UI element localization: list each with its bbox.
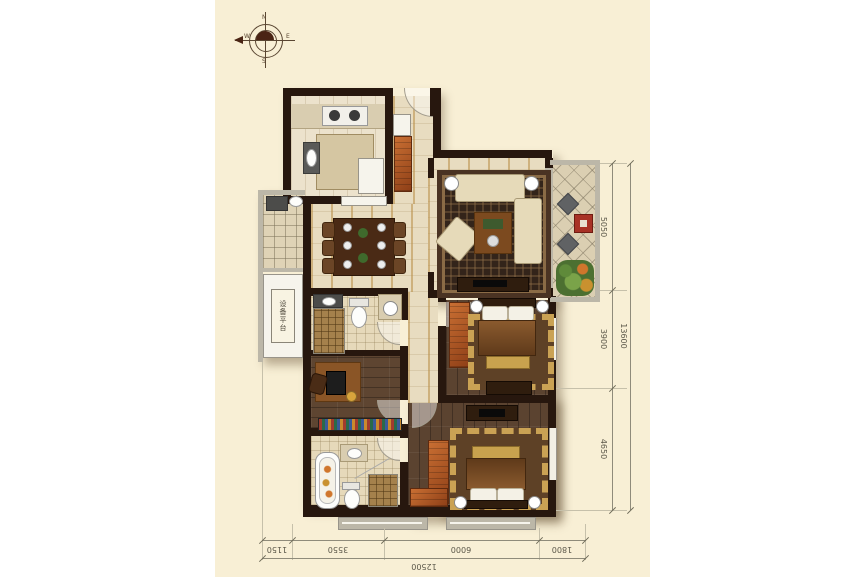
chaise-lounge bbox=[514, 198, 542, 264]
bed-bench bbox=[486, 356, 530, 369]
dining-chair bbox=[322, 240, 335, 256]
bay-window-pane bbox=[342, 522, 422, 524]
plate bbox=[377, 260, 386, 269]
stove-burner-icon bbox=[329, 110, 340, 121]
coffee-table-tray bbox=[483, 219, 503, 229]
master-bath-sink bbox=[347, 448, 362, 459]
utility-counter bbox=[266, 196, 288, 211]
pillow bbox=[508, 306, 534, 321]
kitchen-sliding-door bbox=[341, 196, 387, 206]
plate bbox=[377, 241, 386, 250]
kitchen-sink-unit bbox=[303, 142, 320, 174]
side-table bbox=[524, 176, 539, 191]
bedroom-dresser bbox=[486, 381, 532, 395]
wall-kitchen-right bbox=[385, 96, 393, 204]
floorplan-screenshot: N S W E 设备平台 bbox=[0, 0, 865, 577]
bathtub-interior bbox=[319, 457, 336, 504]
dining-chair bbox=[322, 222, 335, 238]
dining-chair bbox=[322, 258, 335, 274]
kitchen-appliance bbox=[358, 158, 384, 194]
compass-west-arrow-icon bbox=[234, 36, 243, 44]
entry-door-leaf bbox=[430, 88, 433, 116]
wall-bedroom-left bbox=[438, 326, 446, 395]
dim-bottom-segment-1: 1150 bbox=[257, 544, 297, 554]
equipment-platform-label-box: 设备平台 bbox=[271, 289, 295, 343]
plate bbox=[343, 241, 352, 250]
balcony-table bbox=[574, 214, 593, 233]
desk-lamp bbox=[346, 391, 357, 402]
utility-frame-top bbox=[258, 190, 305, 195]
entry-cabinet bbox=[393, 114, 411, 136]
extension-line bbox=[292, 524, 293, 560]
balcony-plants bbox=[556, 260, 594, 296]
extension-line bbox=[539, 528, 540, 560]
stove-burner-icon bbox=[349, 110, 360, 121]
bathtub bbox=[315, 452, 340, 509]
tv-console-master bbox=[466, 405, 518, 421]
extension-line bbox=[262, 362, 263, 560]
wall-master-bath-right bbox=[400, 462, 408, 505]
refrigerator bbox=[394, 136, 412, 192]
dimension-line-right-outer bbox=[630, 163, 631, 510]
dining-chair bbox=[393, 258, 406, 274]
table-plant bbox=[358, 253, 368, 263]
dining-chair bbox=[393, 240, 406, 256]
bathroom-vanity bbox=[378, 294, 402, 320]
corridor-floor bbox=[408, 292, 438, 403]
dim-bottom-segment-4: 1800 bbox=[542, 544, 582, 554]
coffee-table bbox=[474, 212, 512, 254]
nightstand-lamp bbox=[454, 496, 467, 509]
bathroom-counter-sink bbox=[322, 297, 336, 306]
plate bbox=[343, 223, 352, 232]
extension-line bbox=[585, 524, 586, 560]
dim-right-segment-3: 4650 bbox=[598, 429, 608, 469]
bay-window-pane bbox=[450, 522, 530, 524]
bay-window-right bbox=[446, 517, 536, 530]
utility-divider bbox=[263, 268, 303, 272]
compass-label-east: E bbox=[286, 33, 290, 40]
dining-table bbox=[333, 218, 395, 276]
bay-window-left bbox=[338, 517, 428, 530]
extension-line bbox=[556, 388, 627, 389]
plate bbox=[343, 260, 352, 269]
wall-kitchen-top bbox=[283, 88, 393, 96]
tv-console-living bbox=[457, 277, 529, 292]
toilet-bowl bbox=[351, 306, 367, 328]
bathroom-counter bbox=[313, 294, 343, 308]
balcony-frame-bottom bbox=[550, 297, 600, 302]
balcony-frame-top bbox=[550, 160, 600, 165]
stove bbox=[322, 106, 368, 126]
master-wardrobe-horizontal bbox=[410, 488, 448, 507]
master-bath-vanity bbox=[340, 444, 368, 462]
wall-living-top bbox=[433, 150, 552, 158]
dimension-line-bottom-outer bbox=[262, 558, 586, 559]
dim-right-segment-2: 3900 bbox=[598, 319, 608, 359]
master-toilet-bowl bbox=[344, 489, 360, 509]
shower-area bbox=[313, 308, 345, 354]
utility-sink bbox=[289, 196, 303, 207]
dim-right-total: 13600 bbox=[618, 314, 628, 358]
wall-outer-left bbox=[303, 292, 311, 517]
plate bbox=[377, 223, 386, 232]
master-bed-duvet bbox=[466, 458, 526, 490]
wall-dining-left bbox=[303, 196, 311, 292]
dining-chair bbox=[393, 222, 406, 238]
dim-bottom-segment-3: 6000 bbox=[441, 544, 481, 554]
compass-label-west: W bbox=[244, 33, 250, 40]
table-plant bbox=[358, 228, 368, 238]
bedroom-bed-duvet bbox=[478, 320, 536, 356]
compass-label-south: S bbox=[262, 58, 266, 65]
dim-bottom-segment-2: 3550 bbox=[318, 544, 358, 554]
laptop-icon bbox=[326, 371, 346, 395]
equipment-platform-label: 设备平台 bbox=[278, 300, 288, 332]
compass-label-north: N bbox=[262, 14, 267, 21]
bedroom-wardrobe bbox=[449, 302, 470, 368]
master-shower-area bbox=[368, 474, 398, 507]
dim-right-segment-1: 5050 bbox=[598, 207, 608, 247]
nightstand-lamp bbox=[470, 300, 483, 313]
wall-living-left-stub-top bbox=[428, 158, 434, 178]
tv-icon bbox=[473, 280, 507, 287]
dimension-line-right-inner bbox=[612, 163, 613, 510]
side-table bbox=[444, 176, 459, 191]
master-bedroom-window bbox=[549, 428, 557, 480]
extension-line bbox=[384, 528, 385, 560]
master-headboard bbox=[464, 500, 528, 509]
wall-entry-right bbox=[433, 88, 441, 158]
balcony-table-top bbox=[580, 220, 587, 227]
wall-kitchen-left bbox=[283, 88, 291, 196]
wall-bedroom-bottom bbox=[438, 395, 556, 403]
wall-corridor-left-b bbox=[400, 346, 408, 400]
coffee-table-plate bbox=[487, 235, 499, 247]
nightstand-lamp bbox=[528, 496, 541, 509]
dim-bottom-total: 12500 bbox=[404, 561, 444, 571]
vanity-mirror bbox=[383, 301, 398, 316]
pillow bbox=[482, 306, 508, 321]
kitchen-sink-basin bbox=[306, 149, 317, 167]
extension-line bbox=[556, 510, 627, 511]
bookshelf bbox=[318, 418, 402, 431]
equipment-platform: 设备平台 bbox=[263, 274, 303, 358]
tv-icon bbox=[479, 409, 505, 417]
nightstand-lamp bbox=[536, 300, 549, 313]
